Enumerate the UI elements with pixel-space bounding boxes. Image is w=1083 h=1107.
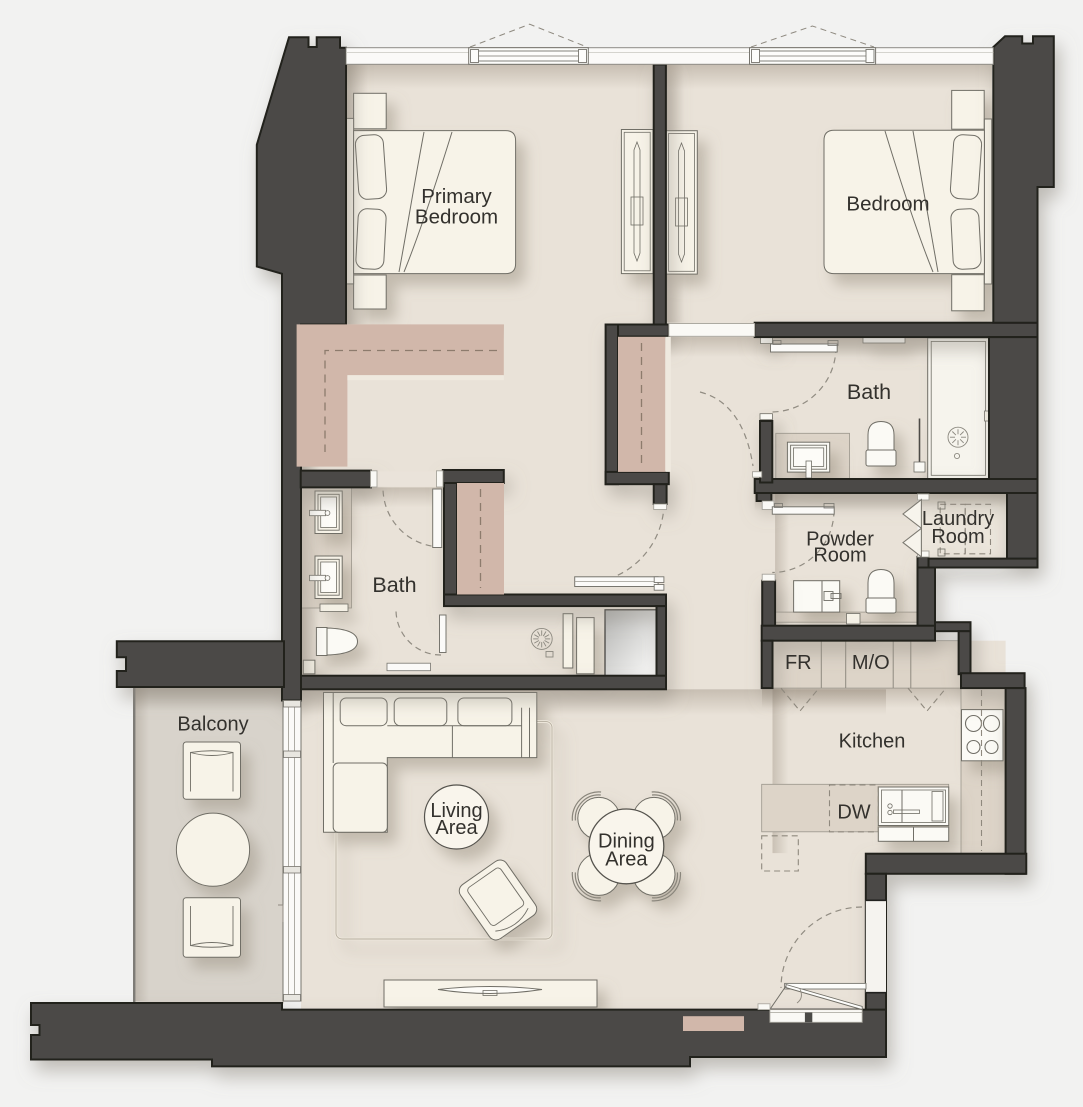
svg-text:FR: FR xyxy=(785,652,812,674)
svg-text:Kitchen: Kitchen xyxy=(839,731,906,753)
svg-text:Balcony: Balcony xyxy=(177,714,248,736)
svg-text:M/O: M/O xyxy=(852,652,890,674)
svg-text:Bath: Bath xyxy=(847,380,891,404)
svg-text:Bath: Bath xyxy=(372,573,416,597)
svg-text:Area: Area xyxy=(605,849,648,871)
svg-text:Area: Area xyxy=(435,817,478,839)
svg-text:DW: DW xyxy=(837,802,870,824)
svg-text:Room: Room xyxy=(931,526,984,548)
svg-text:Bedroom: Bedroom xyxy=(415,206,498,229)
svg-text:Room: Room xyxy=(813,545,866,567)
svg-text:Bedroom: Bedroom xyxy=(846,193,929,216)
